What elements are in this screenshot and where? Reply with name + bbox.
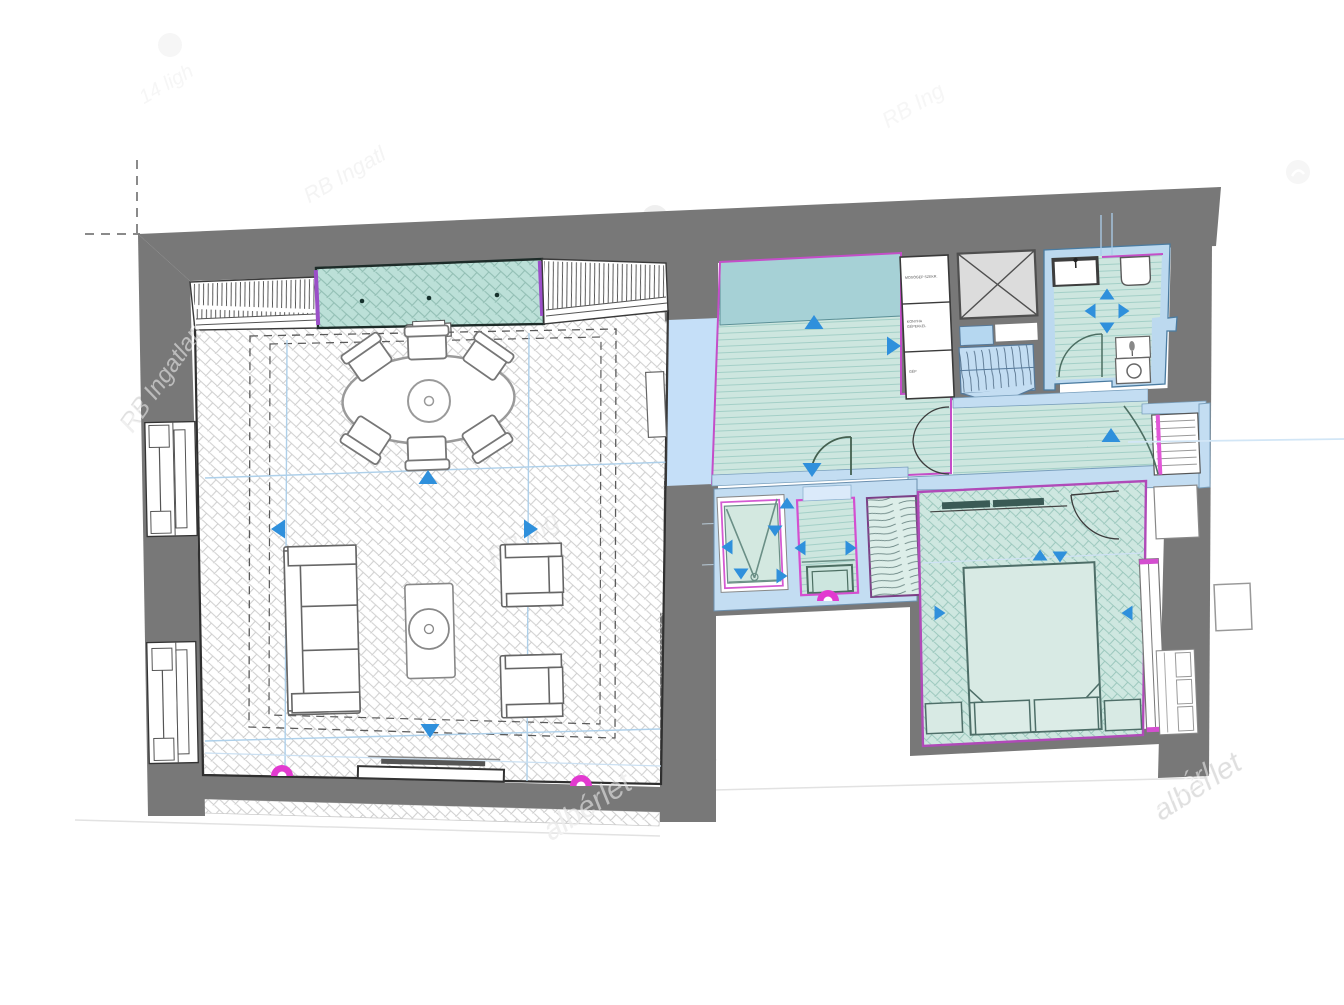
svg-text:GÉPEKKEL: GÉPEKKEL bbox=[907, 323, 926, 329]
svg-text:GÉP: GÉP bbox=[909, 368, 917, 373]
svg-text:KONYHA: KONYHA bbox=[907, 319, 923, 324]
